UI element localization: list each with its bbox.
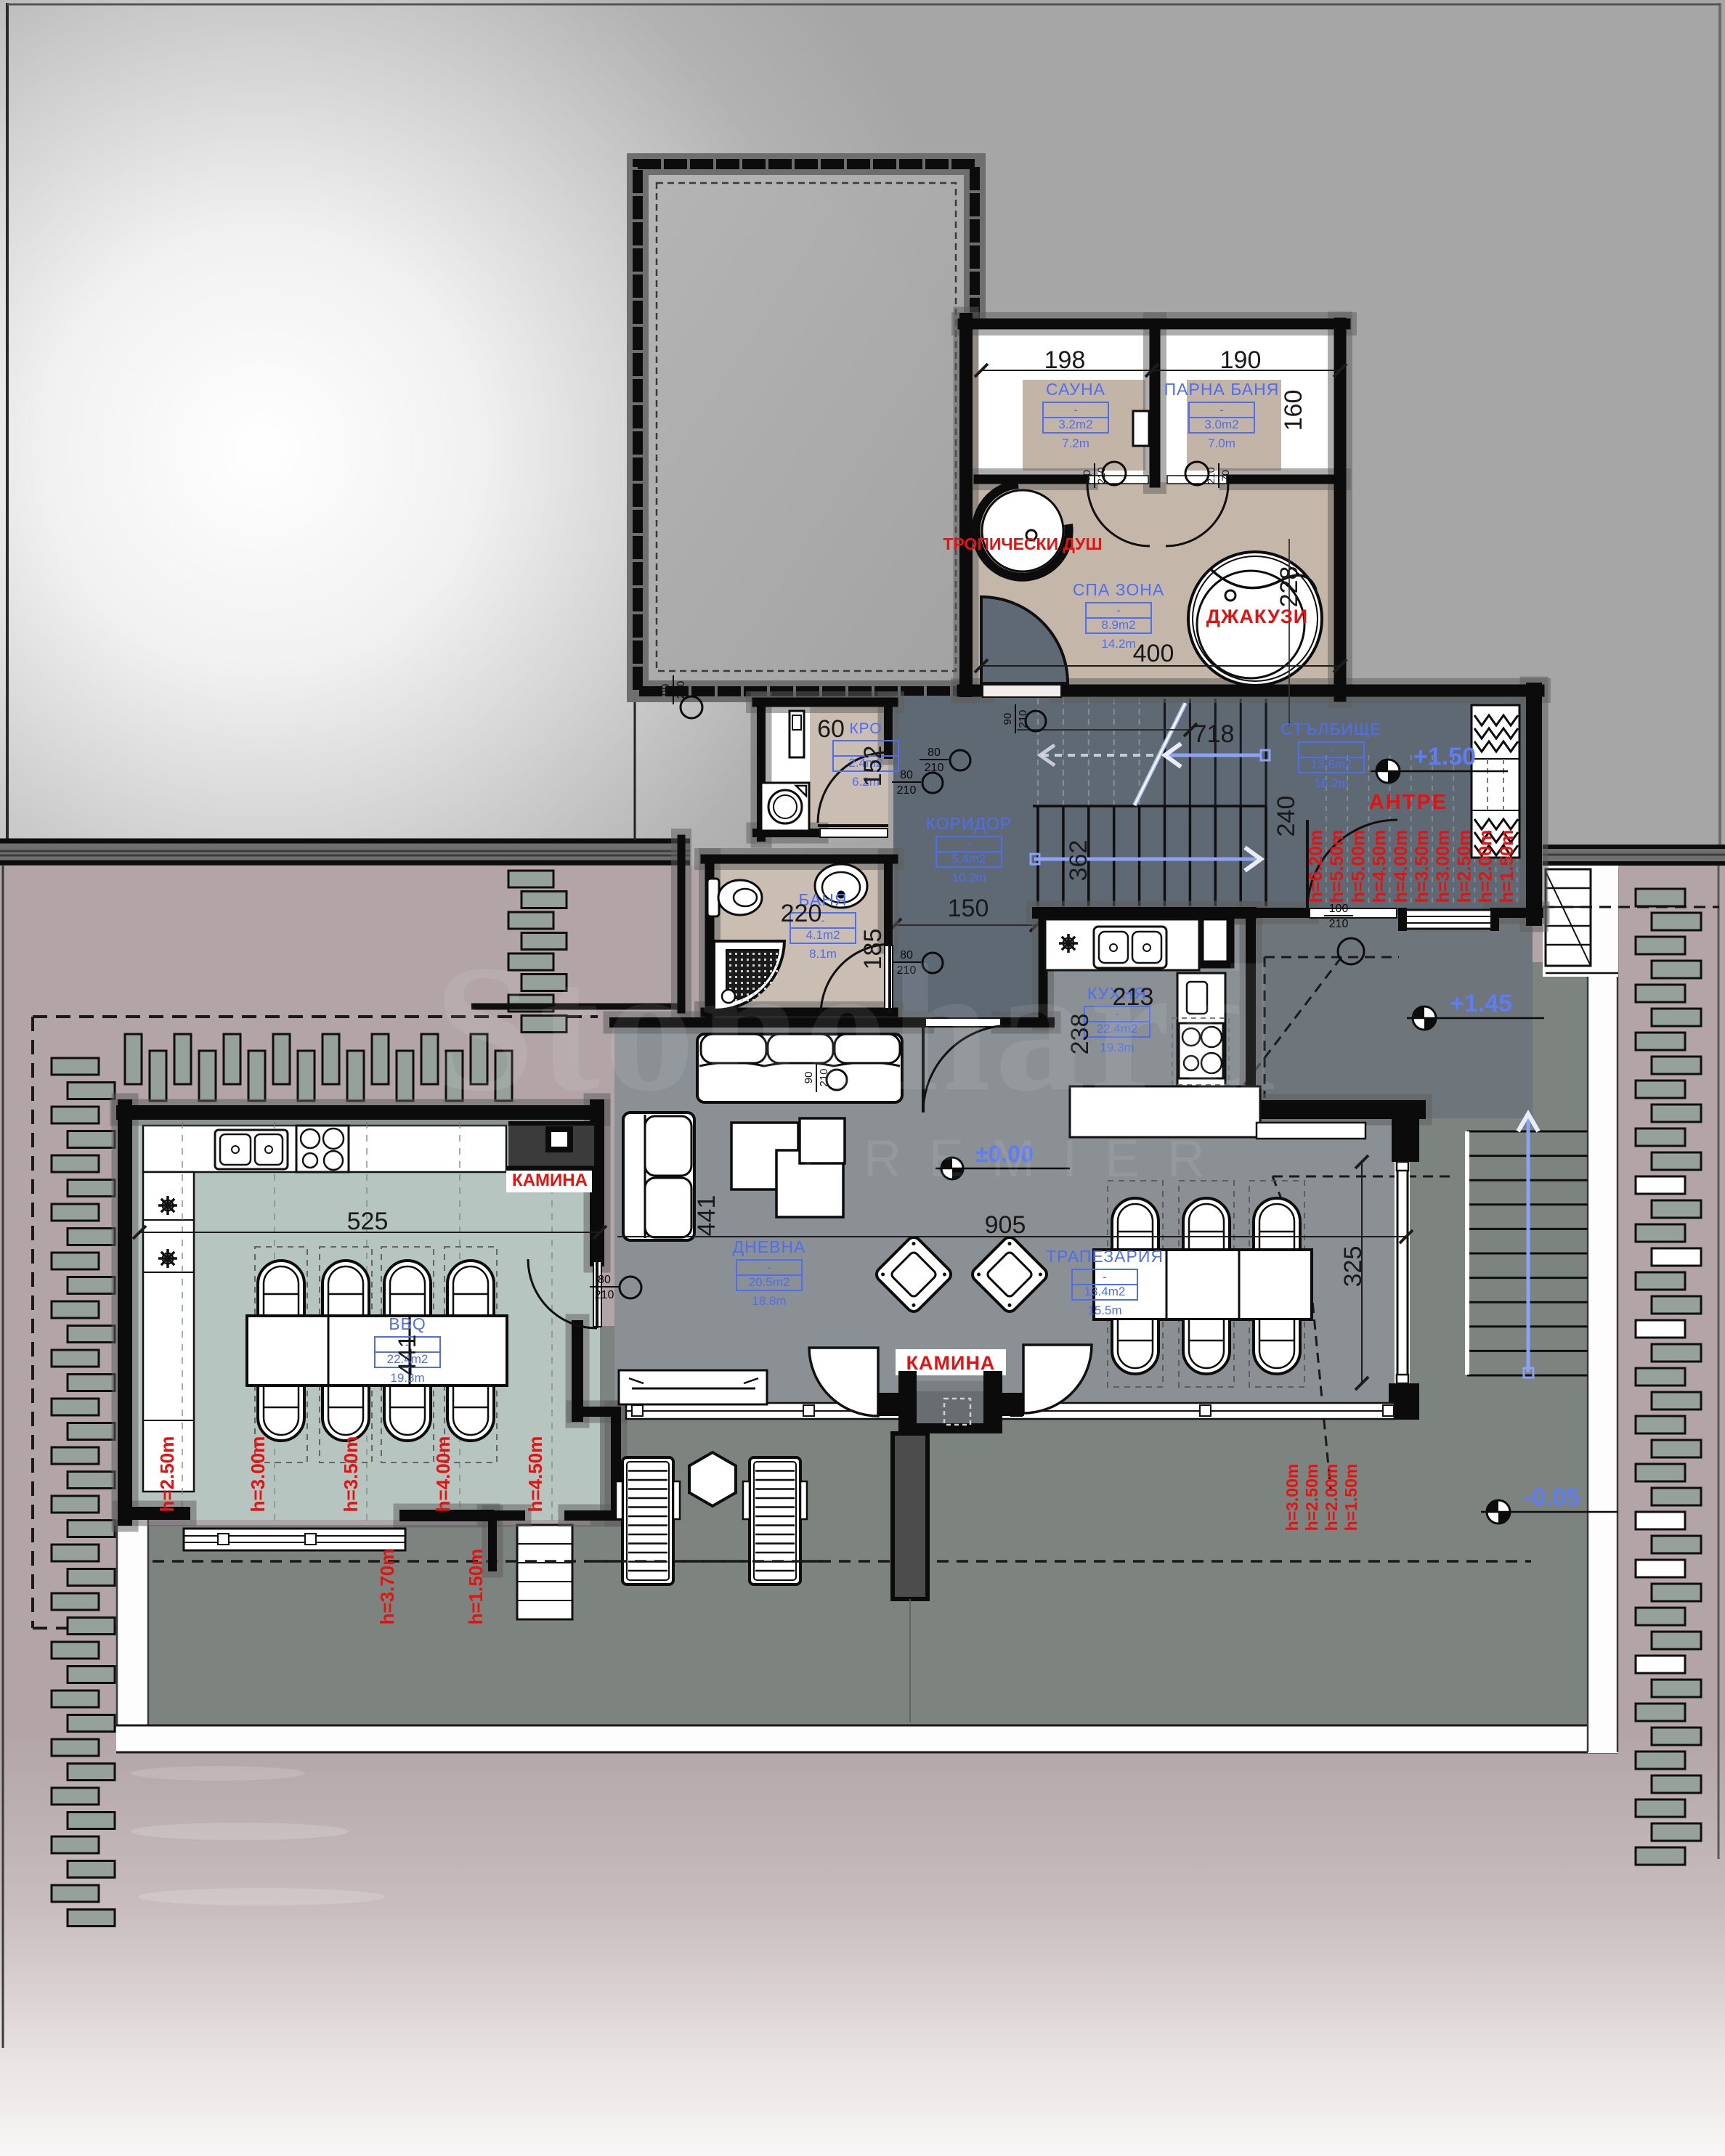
- svg-text:718: 718: [1193, 720, 1235, 748]
- svg-text:h=2.50m: h=2.50m: [1302, 1464, 1321, 1531]
- svg-text:-0.05: -0.05: [1524, 1484, 1580, 1511]
- svg-text:КОРИДОР: КОРИДОР: [926, 814, 1012, 833]
- svg-text:-: -: [1329, 743, 1334, 757]
- svg-text:h=2.00m: h=2.00m: [1322, 1464, 1341, 1531]
- svg-text:160: 160: [1280, 390, 1307, 431]
- svg-text:h=2.00m: h=2.00m: [1476, 830, 1496, 903]
- svg-text:210: 210: [1095, 467, 1107, 484]
- svg-text:САУНА: САУНА: [1046, 380, 1105, 399]
- svg-text:80: 80: [900, 769, 913, 781]
- svg-text:16.2m: 16.2m: [1314, 776, 1348, 790]
- svg-text:441: 441: [693, 1195, 721, 1237]
- svg-text:525: 525: [347, 1208, 389, 1235]
- svg-text:15.5m: 15.5m: [1087, 1303, 1121, 1317]
- svg-text:210: 210: [897, 784, 917, 797]
- svg-text:Stonehard: Stonehard: [434, 928, 1280, 1129]
- svg-text:h=6.20m: h=6.20m: [1306, 830, 1326, 903]
- svg-text:-: -: [1103, 1270, 1107, 1284]
- svg-text:h=2.50m: h=2.50m: [156, 1436, 178, 1513]
- svg-text:190: 190: [1220, 346, 1262, 374]
- svg-text:362: 362: [1065, 840, 1092, 882]
- svg-text:90: 90: [1002, 713, 1014, 725]
- svg-text:210: 210: [675, 680, 687, 699]
- svg-text:7.0m: 7.0m: [1208, 436, 1235, 450]
- svg-text:5.4m2: 5.4m2: [951, 852, 986, 866]
- svg-text:210: 210: [1205, 467, 1217, 484]
- svg-text:400: 400: [1133, 640, 1174, 667]
- svg-text:210: 210: [1017, 709, 1029, 728]
- svg-text:150: 150: [948, 895, 989, 922]
- svg-text:905: 905: [985, 1211, 1026, 1239]
- svg-text:ДНЕВНА: ДНЕВНА: [733, 1237, 806, 1256]
- svg-text:325: 325: [1339, 1246, 1367, 1288]
- svg-text:ПАРНА БАНЯ: ПАРНА БАНЯ: [1164, 380, 1280, 399]
- svg-text:h=4.00m: h=4.00m: [1391, 830, 1411, 903]
- svg-text:90: 90: [659, 684, 672, 696]
- svg-text:-: -: [967, 837, 971, 851]
- svg-text:152: 152: [859, 746, 887, 787]
- svg-text:210: 210: [1329, 918, 1349, 930]
- svg-text:240: 240: [1273, 796, 1300, 837]
- svg-text:КАМИНА: КАМИНА: [512, 1171, 588, 1190]
- svg-text:13.4m2: 13.4m2: [1084, 1285, 1126, 1298]
- svg-text:3.0m2: 3.0m2: [1204, 418, 1238, 431]
- svg-text:h=4.50m: h=4.50m: [524, 1436, 546, 1513]
- svg-text:h=5.00m: h=5.00m: [1348, 830, 1368, 903]
- svg-text:10.2m: 10.2m: [951, 871, 986, 884]
- svg-text:h=3.50m: h=3.50m: [340, 1436, 362, 1513]
- svg-text:-: -: [1116, 603, 1121, 617]
- svg-text:7.2m: 7.2m: [1062, 436, 1089, 450]
- svg-text:h=3.00m: h=3.00m: [247, 1436, 269, 1513]
- svg-text:228: 228: [1275, 566, 1303, 608]
- svg-text:h=5.50m: h=5.50m: [1327, 830, 1347, 903]
- svg-text:BBQ: BBQ: [389, 1314, 426, 1333]
- svg-text:h=1.50m: h=1.50m: [1342, 1464, 1360, 1531]
- svg-text:ТРАПЕЗАРИЯ: ТРАПЕЗАРИЯ: [1046, 1247, 1164, 1266]
- svg-text:210: 210: [595, 1289, 614, 1301]
- svg-text:СПА ЗОНА: СПА ЗОНА: [1073, 580, 1164, 599]
- svg-text:h=1.50m: h=1.50m: [465, 1549, 487, 1625]
- svg-text:СТЪЛБИЩЕ: СТЪЛБИЩЕ: [1280, 720, 1382, 739]
- svg-text:14.2m: 14.2m: [1101, 637, 1135, 651]
- svg-text:h=3.50m: h=3.50m: [1412, 830, 1432, 903]
- svg-text:70: 70: [1081, 470, 1092, 481]
- svg-text:80: 80: [928, 747, 941, 759]
- svg-text:h=3.70m: h=3.70m: [376, 1549, 398, 1625]
- svg-text:АНТРЕ: АНТРЕ: [1369, 791, 1448, 814]
- svg-text:ТРОПИЧЕСКИ ДУШ: ТРОПИЧЕСКИ ДУШ: [943, 534, 1102, 553]
- svg-text:-: -: [1219, 403, 1224, 417]
- svg-text:100: 100: [1329, 903, 1349, 915]
- svg-text:60: 60: [817, 715, 845, 743]
- svg-text:13.6m2: 13.6m2: [1311, 757, 1352, 771]
- svg-text:+1.45: +1.45: [1450, 990, 1512, 1017]
- svg-text:h=2.50m: h=2.50m: [1454, 830, 1474, 903]
- svg-text:+1.50: +1.50: [1413, 743, 1476, 770]
- svg-text:441: 441: [394, 1335, 421, 1376]
- svg-text:20.5m2: 20.5m2: [749, 1275, 790, 1289]
- svg-text:ДЖАКУЗИ: ДЖАКУЗИ: [1206, 606, 1308, 627]
- svg-text:80: 80: [598, 1274, 611, 1286]
- svg-text:18.8m: 18.8m: [752, 1294, 786, 1308]
- svg-text:PREMIER: PREMIER: [801, 1130, 1233, 1188]
- svg-text:-: -: [767, 1261, 771, 1274]
- svg-text:210: 210: [925, 762, 944, 774]
- svg-text:h=3.00m: h=3.00m: [1433, 830, 1453, 903]
- svg-text:198: 198: [1044, 346, 1086, 374]
- svg-text:-: -: [1073, 403, 1078, 417]
- svg-text:h=4.50m: h=4.50m: [1370, 830, 1390, 903]
- svg-text:h=1.50m: h=1.50m: [1497, 830, 1517, 903]
- svg-text:КРО: КРО: [849, 720, 882, 737]
- svg-text:70: 70: [1219, 470, 1231, 481]
- svg-text:h=3.00m: h=3.00m: [1283, 1464, 1302, 1531]
- svg-text:h=4.00m: h=4.00m: [432, 1436, 454, 1513]
- svg-text:220: 220: [781, 900, 822, 927]
- svg-text:3.2m2: 3.2m2: [1058, 418, 1092, 431]
- svg-text:КАМИНА: КАМИНА: [906, 1352, 996, 1374]
- svg-text:8.9m2: 8.9m2: [1101, 618, 1135, 632]
